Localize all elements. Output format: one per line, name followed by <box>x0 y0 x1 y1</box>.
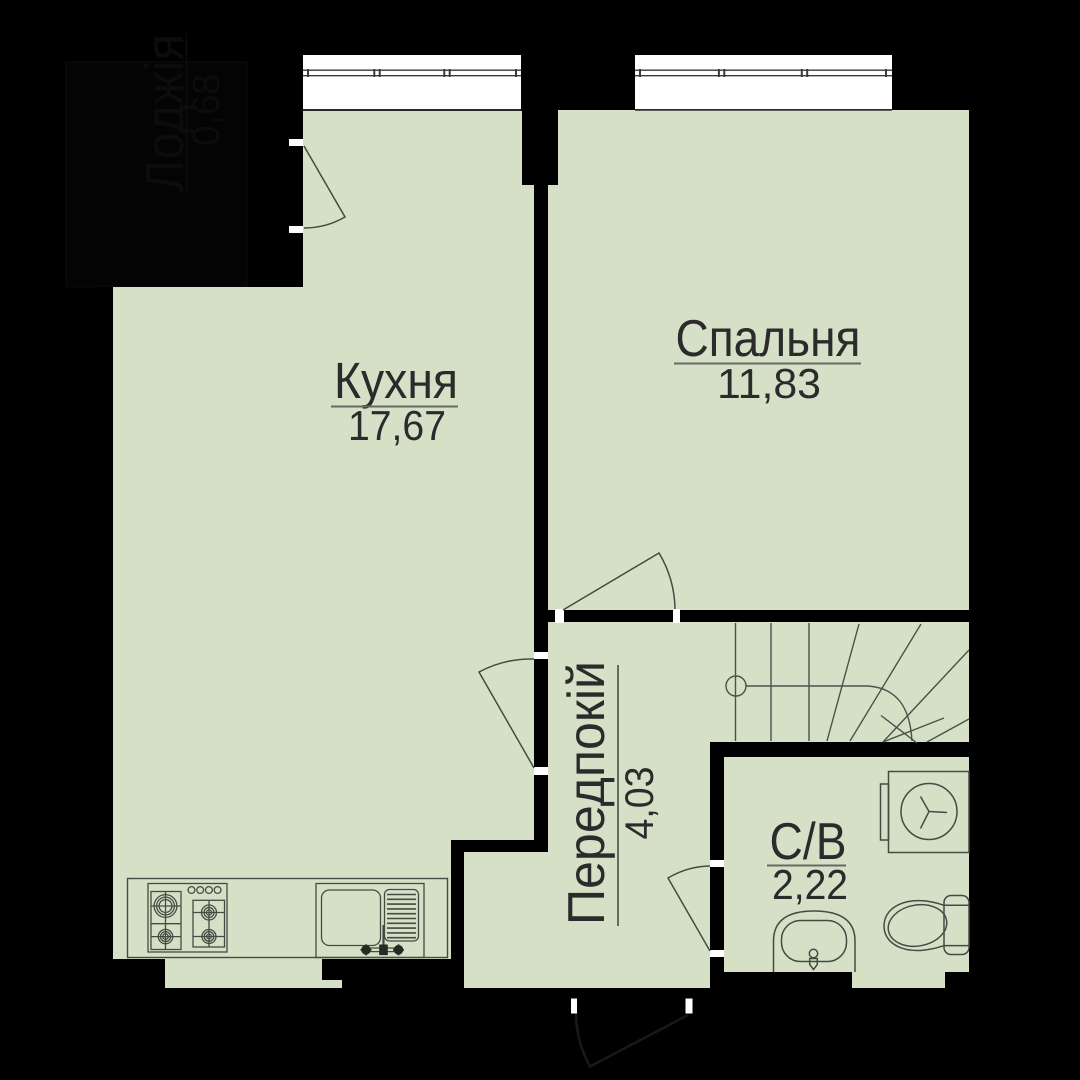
svg-text:2,22: 2,22 <box>772 861 848 908</box>
svg-text:0,68: 0,68 <box>186 74 228 146</box>
svg-text:17,67: 17,67 <box>348 402 446 449</box>
svg-text:4,03: 4,03 <box>618 767 662 840</box>
svg-text:Передпокій: Передпокій <box>558 661 616 925</box>
svg-text:Кухня: Кухня <box>334 352 458 409</box>
svg-text:11,83: 11,83 <box>717 360 821 407</box>
